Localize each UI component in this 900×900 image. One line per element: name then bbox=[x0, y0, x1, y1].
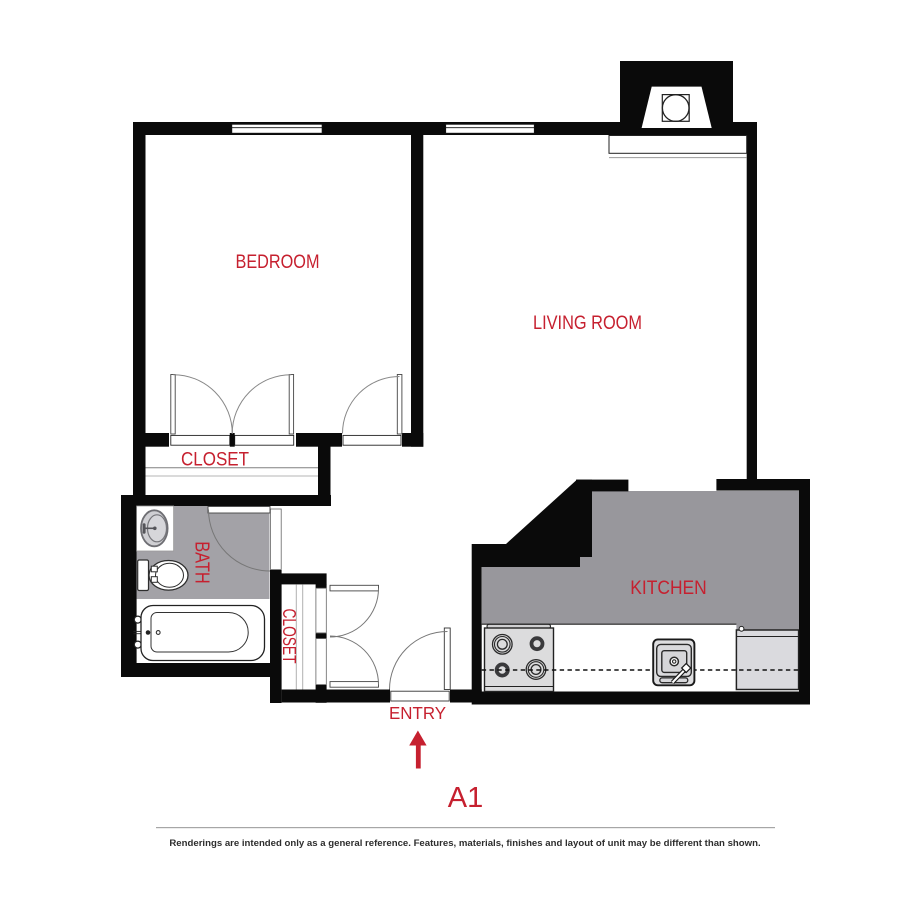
svg-text:LIVING ROOM: LIVING ROOM bbox=[533, 312, 642, 334]
svg-text:A1: A1 bbox=[448, 782, 483, 814]
svg-text:BEDROOM: BEDROOM bbox=[236, 251, 320, 273]
svg-text:Renderings are intended only a: Renderings are intended only as a genera… bbox=[169, 838, 760, 849]
svg-text:KITCHEN: KITCHEN bbox=[630, 577, 707, 599]
svg-text:BATH: BATH bbox=[191, 541, 213, 584]
svg-text:CLOSET: CLOSET bbox=[181, 449, 249, 471]
svg-text:ENTRY: ENTRY bbox=[389, 703, 446, 723]
svg-text:CLOSET: CLOSET bbox=[279, 609, 300, 664]
